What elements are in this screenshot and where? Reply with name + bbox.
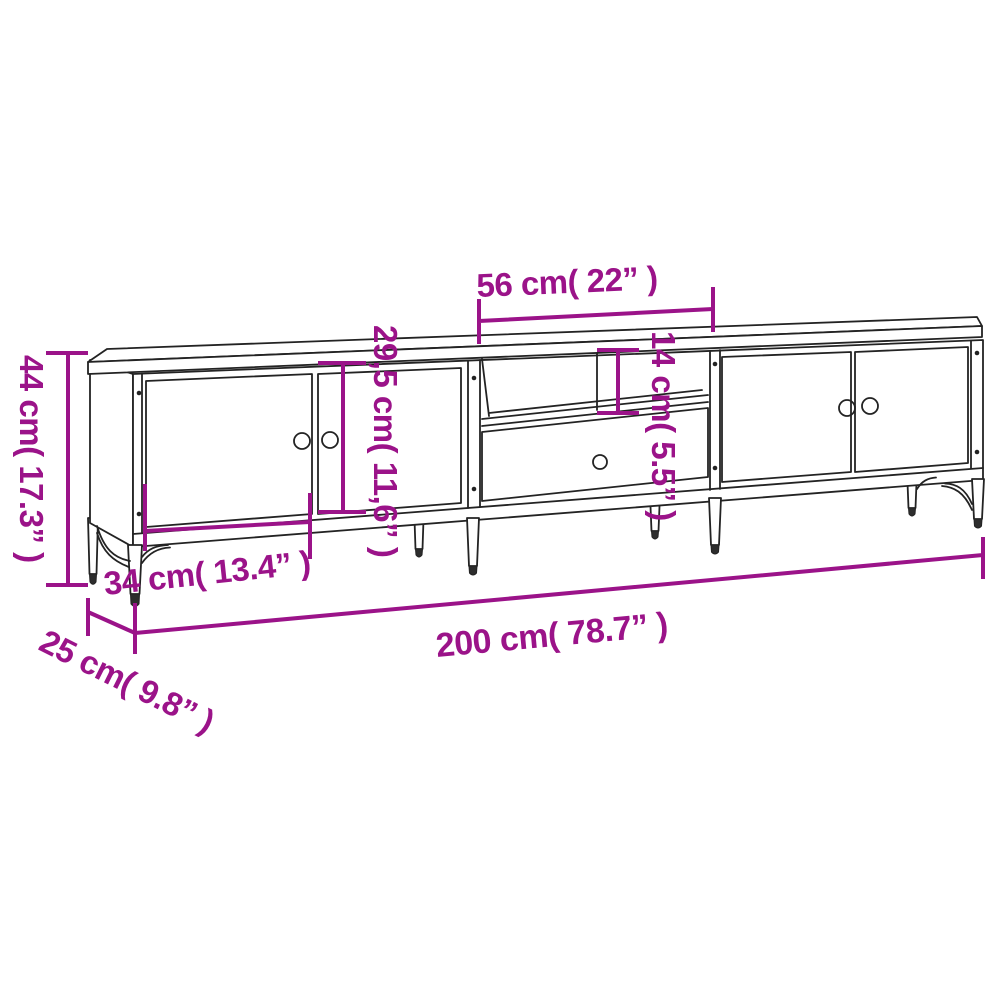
door-left-1 — [146, 374, 312, 527]
dim-overall-height-label: 44 cm( 17.3” ) — [13, 355, 50, 563]
hinge-dot — [137, 391, 142, 396]
leg-front-mid-right — [709, 498, 721, 545]
side-panel-left — [90, 360, 133, 547]
hinge-dot — [713, 362, 718, 367]
dim-door-height-label: 29,5 cm( 11,6” ) — [367, 325, 404, 557]
leg-rear-mid-right-foot — [652, 531, 659, 539]
leg-front-right — [972, 479, 984, 519]
dim-shelf-height-label: 14 cm( 5.5” ) — [645, 331, 682, 521]
dim-overall-height: 44 cm( 17.3” ) — [13, 353, 88, 585]
door-right-1 — [722, 352, 851, 482]
hinge-dot — [472, 487, 477, 492]
leg-front-mid-left-foot — [469, 566, 477, 575]
product-dimension-diagram: 44 cm( 17.3” ) 56 cm( 22” ) 29,5 cm( 11,… — [0, 0, 1000, 1000]
hinge-dot — [472, 376, 477, 381]
bracket-front-right-2 — [942, 486, 972, 510]
dim-overall-height-line — [46, 353, 88, 585]
leg-front-mid-left — [467, 518, 479, 566]
leg-rear-mid-left-foot — [416, 549, 423, 557]
dim-overall-depth-line — [88, 598, 135, 636]
hinge-dot — [975, 450, 980, 455]
leg-rear-left-foot — [90, 574, 97, 584]
diagram-svg: 44 cm( 17.3” ) 56 cm( 22” ) 29,5 cm( 11,… — [0, 0, 1000, 1000]
dim-overall-depth-label: 25 cm( 9.8” ) — [34, 622, 220, 740]
leg-front-right-foot — [974, 519, 982, 528]
hinge-dot — [137, 512, 142, 517]
leg-rear-right-foot — [909, 508, 916, 516]
hinge-dot — [975, 351, 980, 356]
door-right-2 — [855, 347, 968, 472]
hinge-dot — [713, 466, 718, 471]
dim-overall-depth: 25 cm( 9.8” ) — [34, 598, 220, 740]
dim-overall-width-label: 200 cm( 78.7” ) — [434, 606, 669, 665]
dim-middle-width-label: 56 cm( 22” ) — [476, 259, 659, 304]
leg-front-mid-right-foot — [711, 545, 719, 554]
